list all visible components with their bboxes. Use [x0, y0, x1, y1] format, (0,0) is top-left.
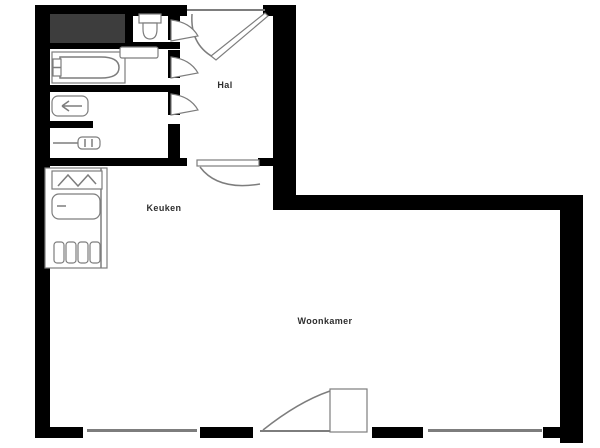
interior-door-bathroom: [171, 57, 198, 78]
room-label-hal: Hal: [203, 80, 247, 90]
hall-kitchen-door-leaf: [197, 160, 259, 166]
hall-kitchen-door-arc: [200, 167, 260, 186]
bathroom-sink: [120, 47, 158, 58]
fixtures-layer: [0, 0, 600, 448]
stove-bar-3: [78, 242, 88, 263]
interior-door-washroom: [171, 94, 198, 115]
toilet-bowl: [143, 23, 157, 39]
stove-bar-2: [66, 242, 76, 263]
stove-bar-4: [90, 242, 100, 263]
front-door-leaf: [211, 13, 268, 60]
kitchen-sink: [52, 171, 102, 189]
balcony-door-leaf: [330, 389, 367, 432]
floor-plan: Hal Keuken Woonkamer: [0, 0, 600, 448]
room-label-keuken: Keuken: [130, 203, 198, 213]
room-label-woonkamer: Woonkamer: [266, 316, 384, 326]
stove-bar-1: [54, 242, 64, 263]
toilet-cistern: [139, 14, 161, 23]
interior-door-toilet: [171, 20, 198, 41]
towel-radiator-box: [78, 137, 100, 149]
balcony-door-arc: [263, 391, 330, 430]
